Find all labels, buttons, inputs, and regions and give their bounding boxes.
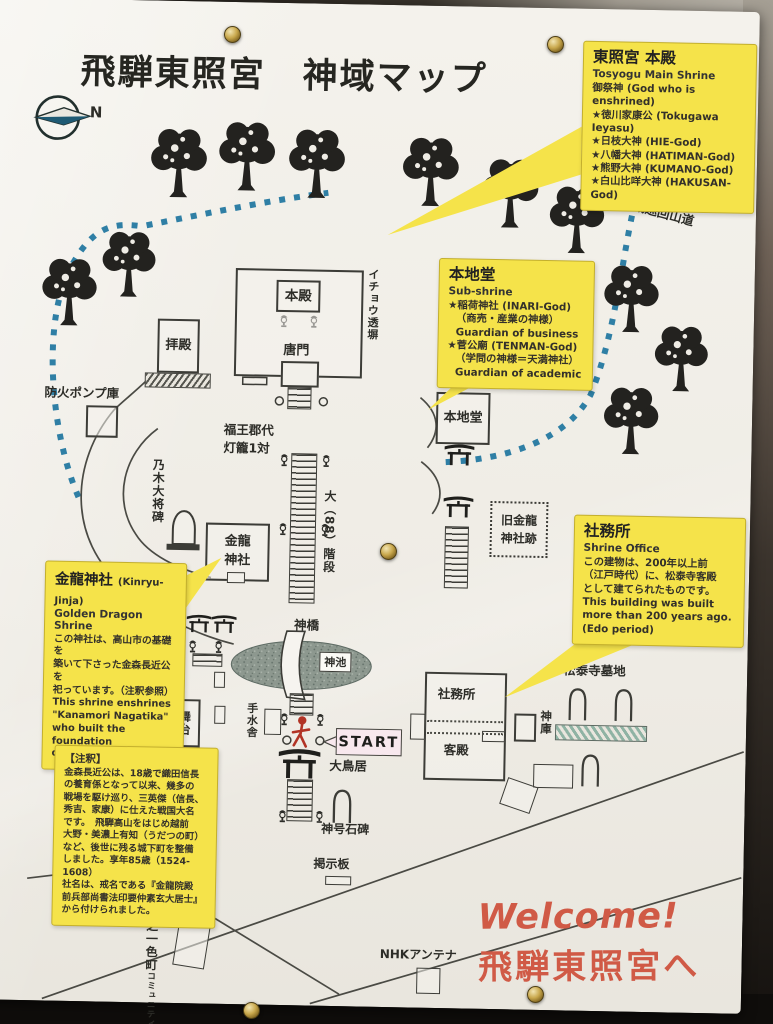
main-shrine-callout-tail [388,123,582,239]
office-callout-tail [505,637,636,699]
photo-of-shrine-map-poster: 飛騨東照宮 神域マップ [0,0,773,1024]
callout-line: ★徳川家康公 (Tokugawa Ieyasu) [592,108,746,138]
welcome-line-2: 飛騨東照宮へ [478,938,700,989]
push-pin-icon [527,986,544,1003]
main-shrine-callout-subtitle: Tosyogu Main Shrine [593,68,747,83]
annotation-callout: 【注釈】 金森長近公は、18歳で織田信長 の養育係となって以来、幾多の 戦場を駆… [51,745,218,929]
sub-shrine-callout-subtitle: Sub-shrine [448,285,584,300]
kinryu-callout: 金龍神社 (Kinryu-Jinja) Golden Dragon Shrine… [41,560,187,772]
push-pin-icon [243,1002,260,1019]
kinryu-callout-tail [182,557,221,614]
welcome-message: Welcome! 飛騨東照宮へ [478,896,701,989]
main-shrine-callout: 東照宮 本殿 Tosyogu Main Shrine 御祭神 (God who … [580,41,757,214]
callout-line: 御祭神 (God who is enshrined) [592,82,746,112]
callout-line: から付けられました。 [61,904,205,919]
sub-shrine-callout: 本地堂 Sub-shrine ★稲荷神社 (INARI-God) （商売・産業の… [437,258,595,391]
kinryu-callout-title: 金龍神社 [55,572,113,589]
push-pin-icon [224,26,241,43]
shrine-map-poster: 飛騨東照宮 神域マップ [0,0,760,1014]
sub-shrine-callout-title: 本地堂 [449,266,585,286]
callout-line: 築いて下さった金森長近公を [53,659,175,687]
callout-line: Guardian of academic [447,366,583,382]
callout-line: この神社は、高山市の基礎を [53,633,175,661]
office-callout-title: 社務所 [584,523,736,544]
push-pin-icon [547,36,564,53]
callout-line: しました。享年85歳（1524-1608） [62,854,206,882]
office-callout: 社務所 Shrine Office この建物は、200年以上前 （江戸時代）に、… [572,515,746,648]
welcome-line-1: Welcome! [478,896,700,938]
start-label: START [336,728,403,756]
push-pin-icon [380,543,397,560]
office-callout-subtitle: Shrine Office [583,542,735,557]
main-shrine-callout-title: 東照宮 本殿 [593,49,747,70]
kinryu-callout-subtitle: Golden Dragon Shrine [54,607,176,633]
callout-line: ★白山比咩大神 (HAKUSAN-God) [590,175,744,205]
